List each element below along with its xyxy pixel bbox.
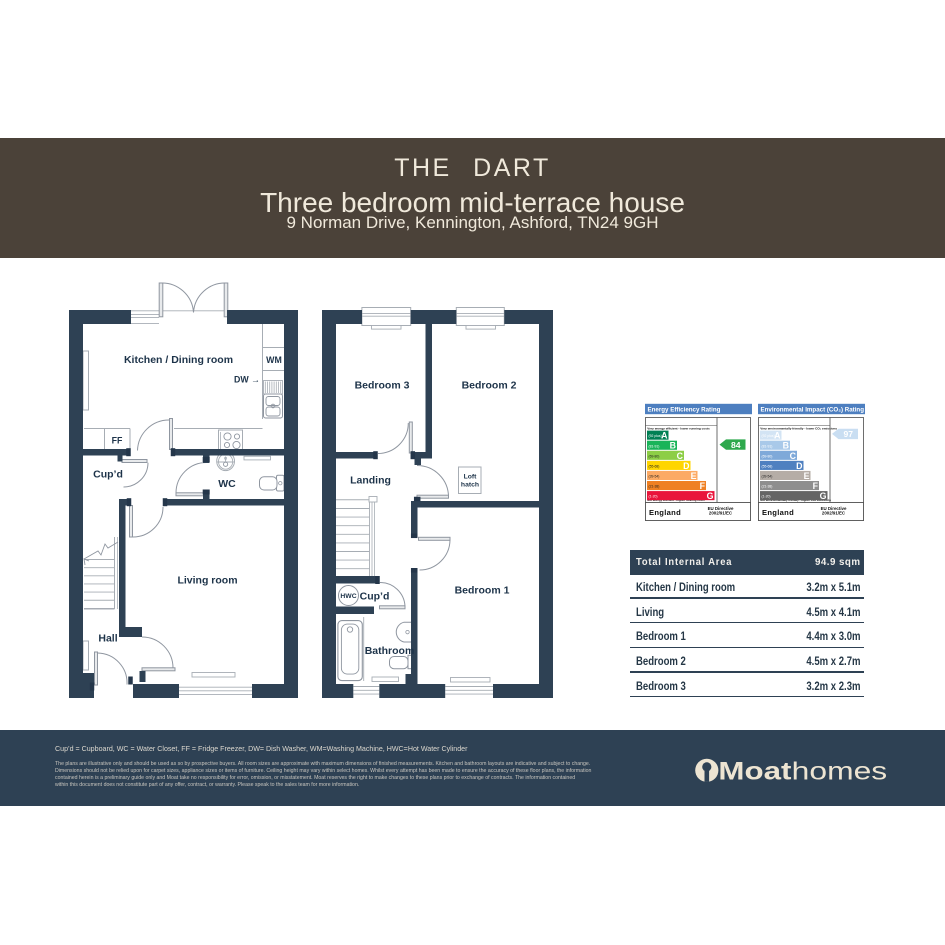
svg-text:C: C [790,451,797,461]
svg-text:(69-80): (69-80) [649,454,660,458]
svg-text:(92 plus): (92 plus) [649,434,662,438]
svg-text:(55-68): (55-68) [762,464,773,468]
svg-text:England: England [649,508,681,517]
svg-text:Very environmentally friendly: Very environmentally friendly - lower CO… [760,426,837,430]
svg-text:(21-38): (21-38) [762,485,773,489]
svg-text:Very energy efficient - lower: Very energy efficient - lower running co… [647,426,710,430]
svg-text:D: D [796,461,802,471]
svg-text:A: A [774,431,781,441]
svg-text:A: A [661,431,668,441]
svg-text:Loft: Loft [464,474,478,481]
svg-text:Bathroom: Bathroom [365,645,415,657]
svg-text:homes: homes [792,758,888,786]
svg-text:(55-68): (55-68) [649,464,660,468]
svg-text:84: 84 [731,440,741,450]
svg-text:hatch: hatch [461,482,479,489]
svg-text:Moat: Moat [718,758,792,786]
svg-text:(81-91): (81-91) [762,444,773,448]
svg-text:WC: WC [218,478,236,490]
svg-text:(92 plus): (92 plus) [762,434,775,438]
svg-text:DW →: DW → [234,375,260,385]
svg-text:HWC: HWC [340,593,356,600]
svg-text:WM: WM [266,355,282,365]
svg-text:Environmental Impact (CO₂) Rat: Environmental Impact (CO₂) Rating [761,406,865,413]
svg-text:D: D [683,461,689,471]
svg-text:F: F [813,481,819,491]
svg-text:Living room: Living room [177,575,237,587]
svg-text:B: B [670,441,676,451]
svg-text:Energy Efficiency Rating: Energy Efficiency Rating [648,406,721,413]
svg-text:(69-80): (69-80) [762,454,773,458]
svg-text:Hall: Hall [98,633,117,645]
svg-text:(39-54): (39-54) [649,475,660,479]
svg-text:G: G [707,491,714,501]
svg-text:(1-20): (1-20) [649,495,658,499]
svg-text:97: 97 [843,429,853,439]
svg-text:E: E [804,471,810,481]
svg-text:(39-54): (39-54) [762,475,773,479]
svg-text:(1-20): (1-20) [762,495,771,499]
svg-text:FF: FF [112,436,123,446]
svg-text:2002/91/EC: 2002/91/EC [822,511,846,516]
svg-text:Bedroom 2: Bedroom 2 [462,380,517,392]
svg-text:Kitchen / Dining room: Kitchen / Dining room [124,354,233,366]
svg-text:C: C [677,451,684,461]
svg-text:Bedroom 1: Bedroom 1 [455,585,510,597]
svg-text:Landing: Landing [350,475,391,487]
svg-text:(21-38): (21-38) [649,485,660,489]
svg-text:(81-91): (81-91) [649,444,660,448]
svg-text:Cup’d: Cup’d [93,469,123,481]
svg-text:England: England [762,508,794,517]
svg-text:F: F [700,481,706,491]
svg-text:G: G [820,491,827,501]
svg-text:E: E [691,471,697,481]
svg-text:Bedroom 3: Bedroom 3 [355,380,410,392]
svg-text:Cup’d: Cup’d [360,591,390,603]
svg-text:B: B [783,441,789,451]
svg-text:2002/91/EC: 2002/91/EC [709,511,733,516]
